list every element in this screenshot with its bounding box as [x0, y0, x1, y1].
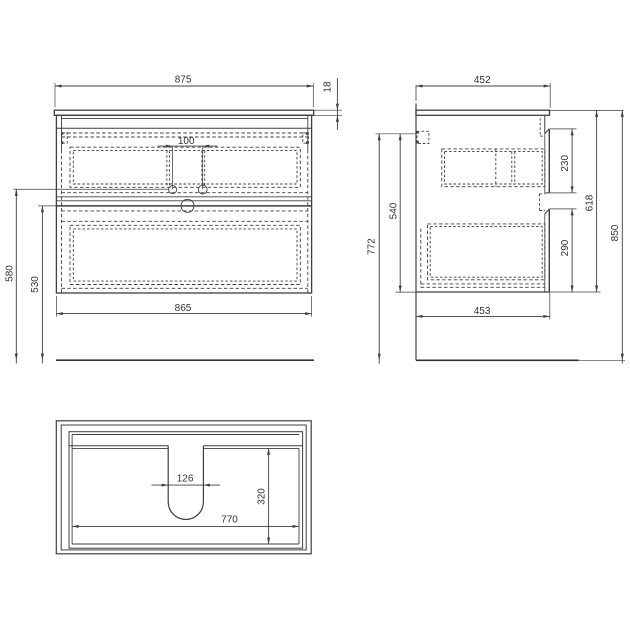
svg-text:530: 530: [30, 276, 41, 293]
svg-text:290: 290: [560, 239, 571, 256]
svg-text:580: 580: [5, 265, 16, 282]
svg-text:865: 865: [175, 303, 192, 314]
svg-text:772: 772: [366, 238, 377, 255]
svg-text:875: 875: [175, 74, 192, 85]
svg-text:540: 540: [388, 202, 399, 219]
svg-text:770: 770: [221, 515, 238, 526]
svg-text:320: 320: [257, 488, 268, 505]
svg-text:100: 100: [178, 136, 195, 147]
svg-text:453: 453: [474, 306, 491, 317]
svg-text:230: 230: [560, 155, 571, 172]
svg-text:850: 850: [610, 224, 621, 241]
svg-text:126: 126: [177, 473, 194, 484]
svg-text:452: 452: [474, 75, 491, 86]
svg-text:18: 18: [323, 81, 334, 93]
svg-text:618: 618: [585, 194, 596, 211]
